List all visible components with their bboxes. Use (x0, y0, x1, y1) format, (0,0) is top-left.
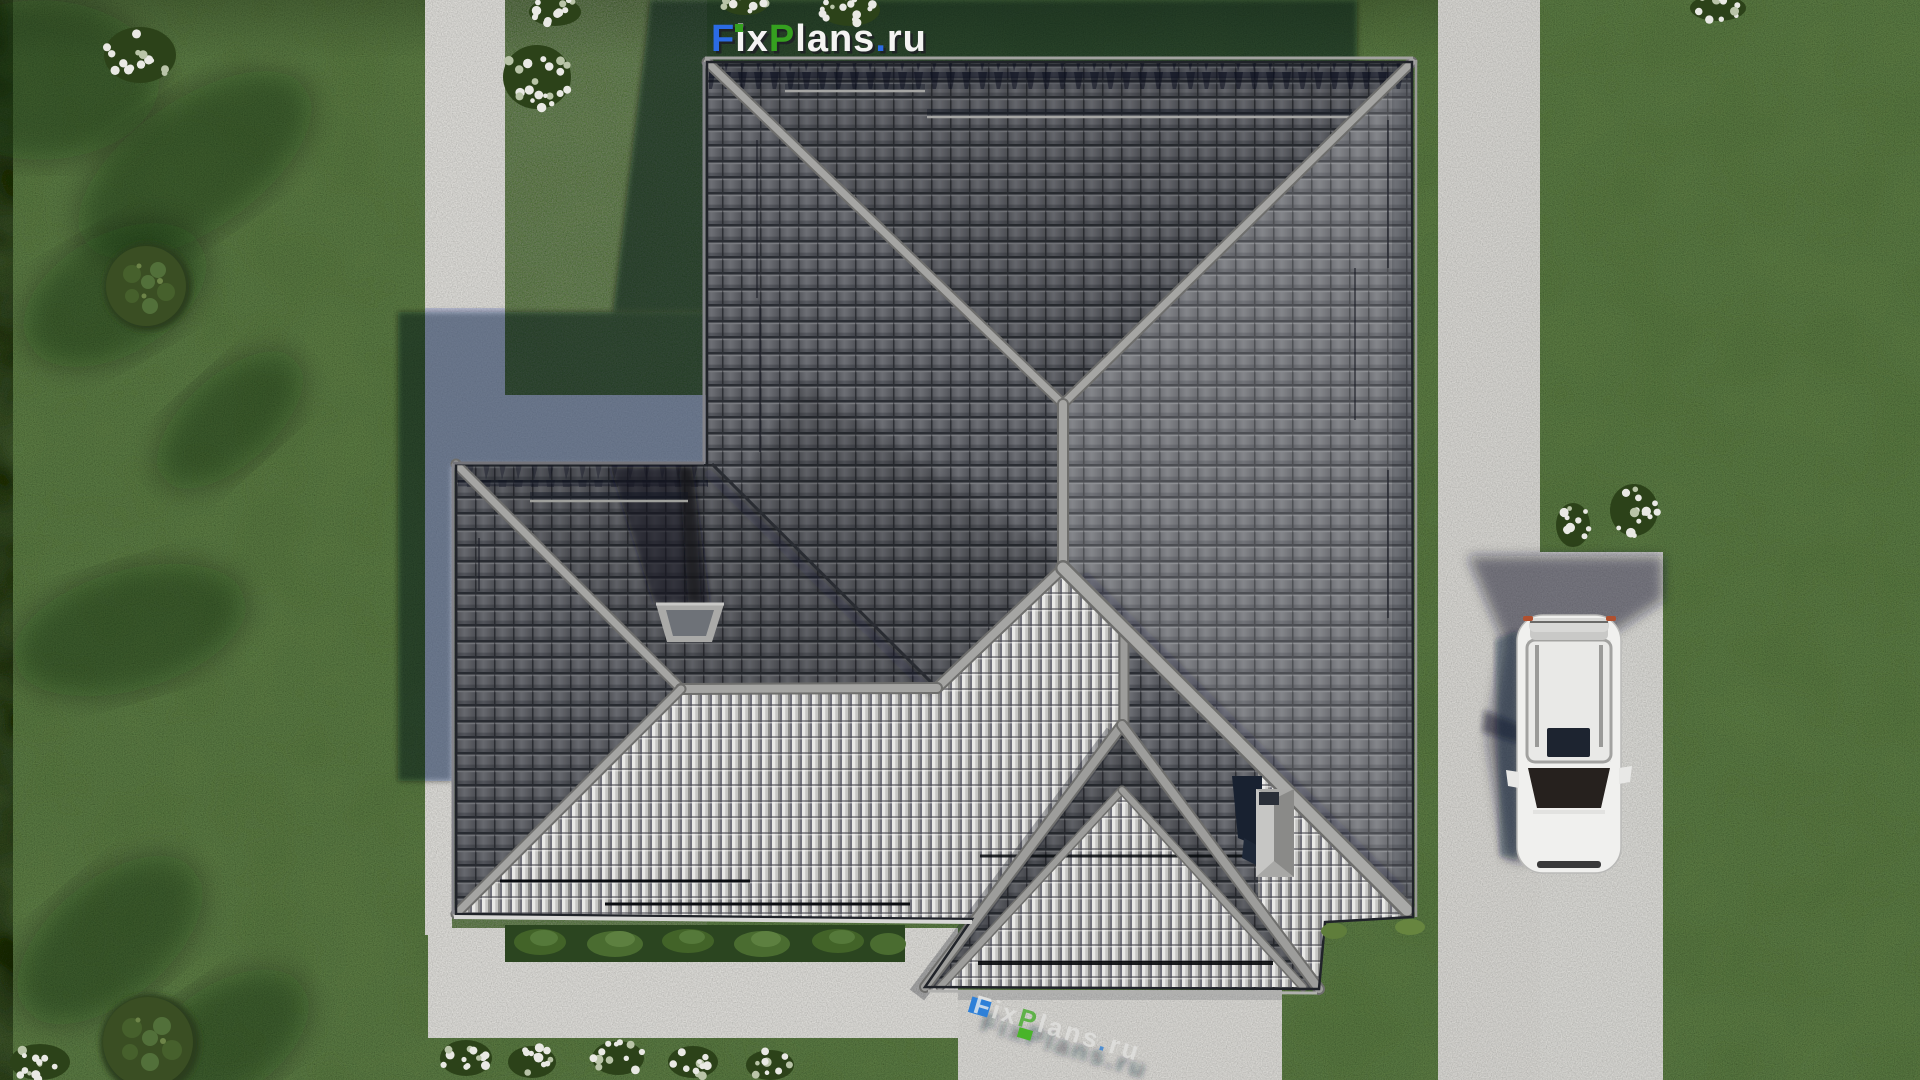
svg-text:FixPlans.ru: FixPlans.ru (711, 18, 927, 60)
